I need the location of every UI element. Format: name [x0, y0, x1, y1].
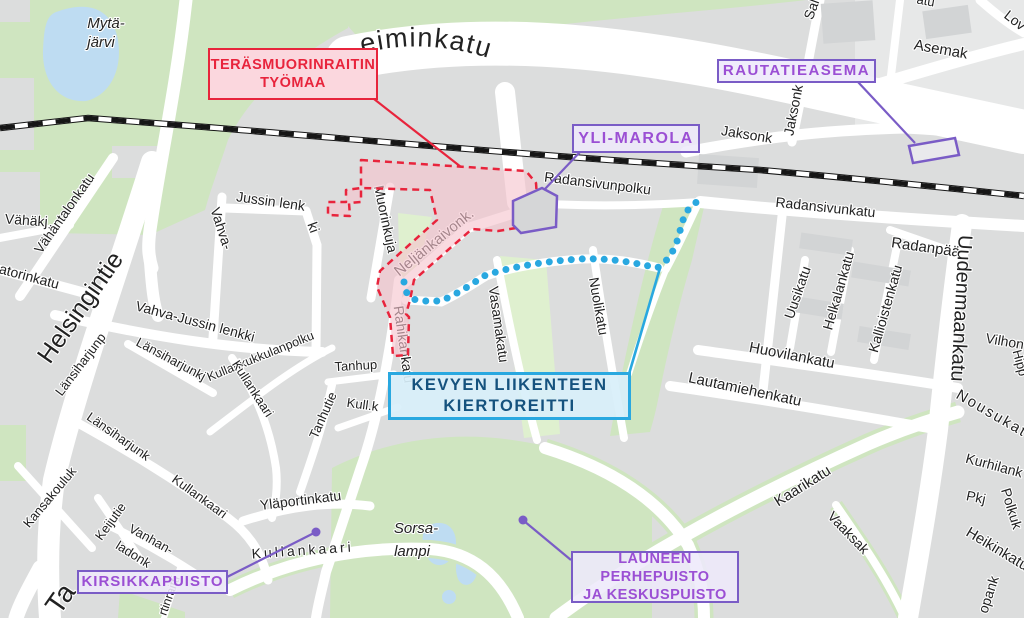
street-label: Tanhutie [306, 390, 340, 441]
station-building [909, 138, 959, 163]
work-area-callout-line2: TYÖMAA [260, 74, 326, 92]
street-label: Nuolikatu [586, 276, 612, 336]
detour-callout-line2: KIERTOREITTI [443, 396, 575, 417]
street-label: Tanhup [334, 357, 377, 374]
street-label: Kullankaari [169, 471, 230, 521]
street-label: opank [975, 573, 1002, 615]
street-label: lampi [394, 543, 431, 560]
street-label: Kull.k [346, 395, 380, 414]
pond-sorsalampi-3 [442, 590, 456, 604]
street-label: Polkuk [998, 486, 1024, 532]
street-label: Kullankukkulanpolku [205, 328, 316, 384]
launeen-leader-dot [519, 516, 528, 525]
street-label: järvi [85, 34, 115, 51]
rautatieasema-callout: RAUTATIEASEMA [717, 59, 876, 83]
kirsikkapuisto-leader-dot [312, 528, 321, 537]
kirsikkapuisto-callout: KIRSIKKAPUISTO [77, 570, 228, 594]
street-label: Hipp [1010, 348, 1024, 378]
street-label: Heikinkatu [963, 524, 1024, 575]
work-area-callout-line1: TERÄSMUORINRAITIN [211, 56, 376, 74]
map-canvas[interactable]: Mannerheiminkatu Mytä-järviVähäkjVähänta… [0, 0, 1024, 618]
street-label: Pkj [965, 487, 987, 507]
street-label: Lautamiehenkatu [687, 369, 803, 410]
street-label: Helkalankatu [819, 250, 857, 332]
detour-callout-line1: KEVYEN LIIKENTEEN [411, 375, 607, 396]
street-label: Kurhilank [964, 450, 1024, 481]
map-image: Mannerheiminkatu Mytä-järviVähäkjVähänta… [0, 0, 1024, 618]
work-area-callout: TERÄSMUORINRAITIN TYÖMAA [208, 48, 378, 100]
yli-marola-callout: YLI-MAROLA [572, 124, 700, 153]
street-label: Sorsa- [394, 520, 438, 537]
work-area-leader [374, 99, 461, 167]
street-label: Nousukatu [953, 386, 1024, 446]
kirsikkapuisto-callout-label: KIRSIKKAPUISTO [81, 573, 223, 592]
launeen-callout-line2: JA KESKUSPUISTO [583, 586, 727, 604]
street-label: Mytä- [87, 15, 125, 32]
rautatieasema-callout-label: RAUTATIEASEMA [723, 62, 870, 81]
street-label: Muorinkuja [371, 184, 401, 255]
street-label: Vähäkj [4, 211, 48, 230]
detour-callout: KEVYEN LIIKENTEEN KIERTOREITTI [388, 372, 631, 420]
yli-marola-callout-label: YLI-MAROLA [578, 129, 693, 149]
launeen-callout-line1: LAUNEEN PERHEPUISTO [573, 550, 737, 586]
launeen-callout: LAUNEEN PERHEPUISTO JA KESKUSPUISTO [571, 551, 739, 603]
